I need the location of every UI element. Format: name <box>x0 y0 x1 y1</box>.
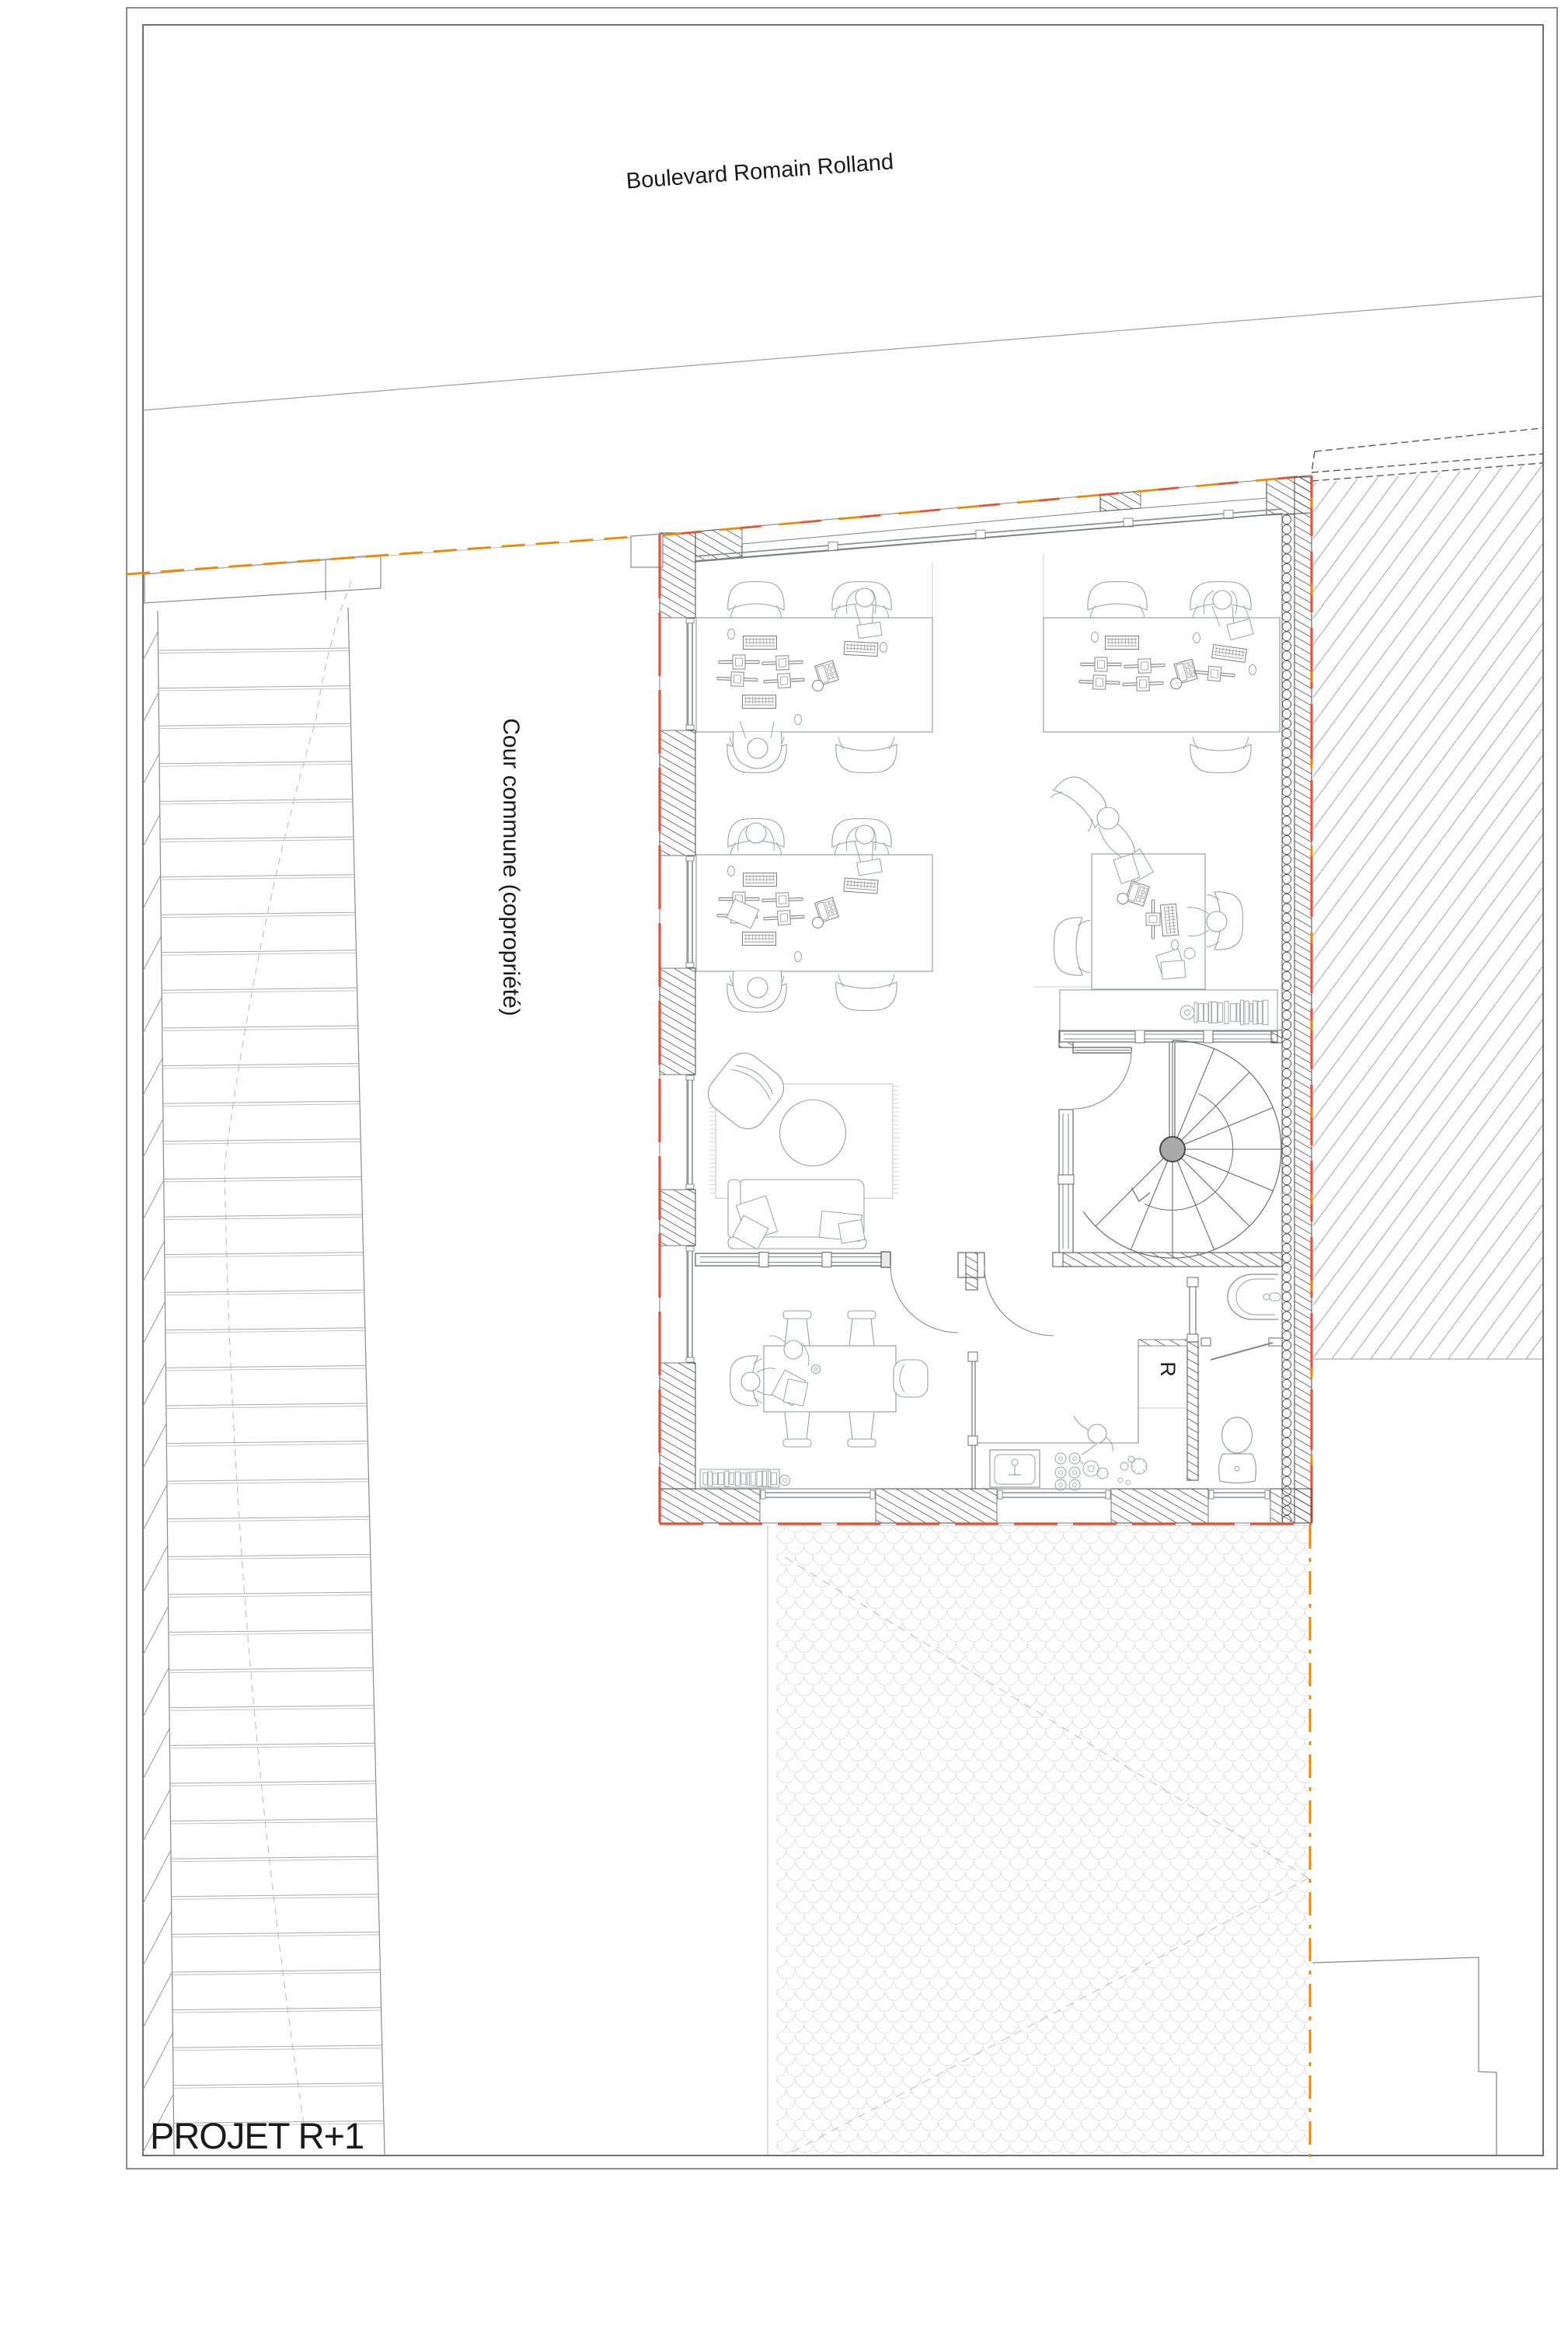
svg-text:R: R <box>1156 1361 1179 1377</box>
svg-text:Cour commune (copropriété): Cour commune (copropriété) <box>498 718 524 1016</box>
svg-text:PROJET R+1: PROJET R+1 <box>150 2115 364 2156</box>
